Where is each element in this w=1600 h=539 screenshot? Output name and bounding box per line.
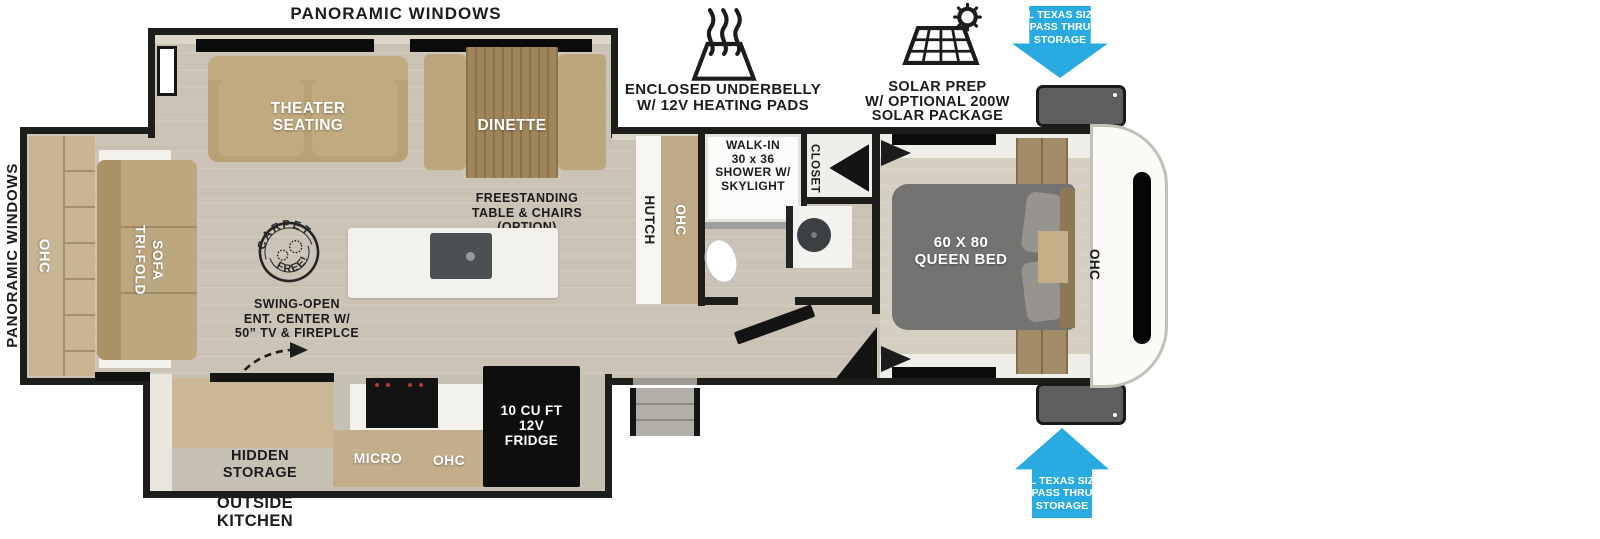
hutch-label: HUTCH <box>641 195 656 244</box>
solar-prep-label: SOLAR PREP W/ OPTIONAL 200W SOLAR PACKAG… <box>840 80 1035 124</box>
hidden-storage-counter <box>172 378 334 448</box>
rear-ohc-cabinet: OHC <box>29 136 95 376</box>
rv-floorplan-diagram: OHC TRI-FOLD SOFA THEATER SEATING DINETT… <box>0 0 1600 539</box>
vanity-side-panel <box>786 206 793 268</box>
step-line <box>636 403 694 405</box>
swing-open-ent-center-label: SWING-OPEN ENT. CENTER W/ 50” TV & FIREP… <box>226 297 368 341</box>
micro-label: MICRO <box>341 451 415 466</box>
hidden-storage-label: HIDDEN STORAGE <box>190 448 330 481</box>
closet-door-wedge <box>824 141 869 195</box>
tri-fold-sofa-label: TRI-FOLD SOFA <box>131 225 166 295</box>
panoramic-windows-left-label: PANORAMIC WINDOWS <box>5 150 22 360</box>
kitchen-ohc-label: OHC <box>425 453 473 468</box>
carpet-free-stamp-icon: CARPET FREE! <box>256 219 322 285</box>
hutch-ohc-cabinet: OHC <box>661 136 699 304</box>
kitchen-bay-wall-band <box>150 374 172 491</box>
pass-thru-box-top <box>1036 85 1126 127</box>
closet-label: CLOSET <box>808 137 821 201</box>
pass-thru-arrow-bottom: XL TEXAS SIZE PASS THRU STORAGE <box>1015 428 1109 518</box>
hidden-storage-countertop <box>210 373 334 382</box>
bedroom-window-bottom <box>892 367 996 378</box>
rear-ohc-label: OHC <box>35 239 52 274</box>
stove-knob <box>408 383 412 387</box>
pass-thru-box-bottom <box>1036 383 1126 425</box>
kitchen-island <box>348 228 558 298</box>
dinette-table: DINETTE <box>466 47 558 178</box>
bath-bottom-wall-left <box>698 297 738 305</box>
front-cap-window <box>1133 172 1151 344</box>
outside-kitchen-label: OUTSIDE KITCHEN <box>175 494 335 530</box>
carpet-stamp-top-text: CARPET <box>256 219 315 254</box>
pass-thru-bottom-text: XL TEXAS SIZE PASS THRU STORAGE <box>1015 475 1109 512</box>
enclosed-underbelly-label: ENCLOSED UNDERBELLY W/ 12V HEATING PADS <box>600 82 846 114</box>
hutch-ohc-label: OHC <box>672 204 687 235</box>
box-rivet-dot <box>1113 93 1117 97</box>
queen-bed-label: 60 X 80 QUEEN BED <box>896 234 1026 269</box>
svg-text:CARPET: CARPET <box>256 219 315 254</box>
box-rivet-dot <box>1113 413 1117 417</box>
closet-bottom-wall <box>807 197 872 204</box>
step-line <box>636 419 694 421</box>
bedroom-wall <box>872 134 880 314</box>
queen-bed: 60 X 80 QUEEN BED <box>892 184 1074 330</box>
wardrobe-door-line <box>1041 138 1043 186</box>
fridge: 10 CU FT 12V FRIDGE <box>483 366 580 487</box>
entry-steps <box>630 388 700 436</box>
cabinet-door-slats <box>63 136 95 376</box>
bed-console <box>1038 231 1068 283</box>
hutch-counter: HUTCH <box>636 136 661 304</box>
heating-pad-icon <box>682 6 766 82</box>
solar-panel-sun-icon <box>896 2 984 78</box>
cooktop-stove <box>366 378 438 428</box>
bedroom-ohc-label: OHC <box>1086 236 1101 294</box>
pass-thru-arrow-top: XL TEXAS SIZE PASS THRU STORAGE <box>1012 6 1108 78</box>
sofa-backrest <box>97 160 121 360</box>
wardrobe-top <box>1016 138 1068 186</box>
fridge-label: 10 CU FT 12V FRIDGE <box>501 404 563 449</box>
wardrobe-door-line <box>1041 326 1043 374</box>
corner-window <box>157 46 177 96</box>
rear-bottom-window-strip <box>95 372 150 381</box>
bath-bottom-wall-right <box>795 297 880 305</box>
wardrobe-bottom <box>1016 326 1068 374</box>
dinette-bench-right <box>558 54 606 170</box>
stove-knob <box>419 383 423 387</box>
pass-thru-top-text: XL TEXAS SIZE PASS THRU STORAGE <box>1012 9 1108 46</box>
island-sink <box>430 233 492 279</box>
sink-drain-dot <box>811 232 817 238</box>
dinette-label: DINETTE <box>448 117 576 134</box>
panoramic-windows-top-label: PANORAMIC WINDOWS <box>268 5 524 24</box>
closet: CLOSET <box>807 134 872 204</box>
theater-seating-label: THEATER SEATING <box>208 100 408 134</box>
tri-fold-sofa: TRI-FOLD SOFA <box>97 160 197 360</box>
bedroom-window-top <box>892 134 996 145</box>
theater-seating: THEATER SEATING <box>208 56 408 162</box>
panoramic-window-strip-1 <box>196 39 374 52</box>
dinette-bench-left <box>424 54 466 170</box>
bath-sink <box>797 218 831 252</box>
micro-ohc-cabinet: MICRO OHC <box>333 430 483 487</box>
stove-knob <box>386 383 390 387</box>
faucet-dot <box>466 252 475 261</box>
theater-backrest <box>208 56 408 80</box>
entry-threshold <box>633 378 697 385</box>
stove-knob <box>375 383 379 387</box>
shower-label: WALK-IN 30 x 36 SHOWER W/ SKYLIGHT <box>703 139 803 193</box>
